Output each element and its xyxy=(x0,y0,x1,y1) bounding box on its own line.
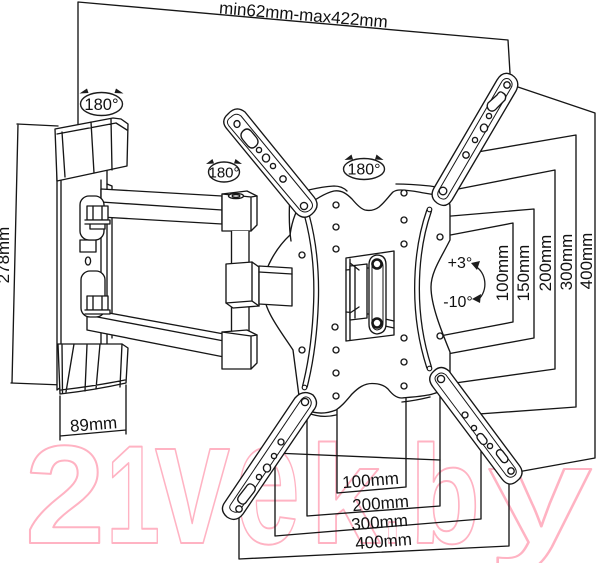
svg-text:400mm: 400mm xyxy=(355,530,413,553)
svg-text:180°: 180° xyxy=(208,165,239,182)
svg-text:b: b xyxy=(410,416,480,563)
svg-text:400mm: 400mm xyxy=(577,233,596,290)
svg-text:150mm: 150mm xyxy=(514,245,533,302)
svg-text:278mm: 278mm xyxy=(0,227,13,284)
svg-text:180°: 180° xyxy=(84,96,118,114)
svg-text:min62mm-max422mm: min62mm-max422mm xyxy=(218,0,388,32)
svg-text:-10°: -10° xyxy=(443,294,473,311)
svg-text:v: v xyxy=(155,382,230,563)
svg-text:y: y xyxy=(488,416,592,563)
svg-text:+3°: +3° xyxy=(448,255,473,272)
svg-text:300mm: 300mm xyxy=(557,234,576,291)
svg-text:200mm: 200mm xyxy=(536,235,555,292)
svg-text:2: 2 xyxy=(25,416,105,563)
svg-text:1: 1 xyxy=(106,416,160,563)
svg-text:100mm: 100mm xyxy=(493,245,512,302)
svg-text:89mm: 89mm xyxy=(69,413,118,436)
svg-text:180°: 180° xyxy=(347,162,380,179)
